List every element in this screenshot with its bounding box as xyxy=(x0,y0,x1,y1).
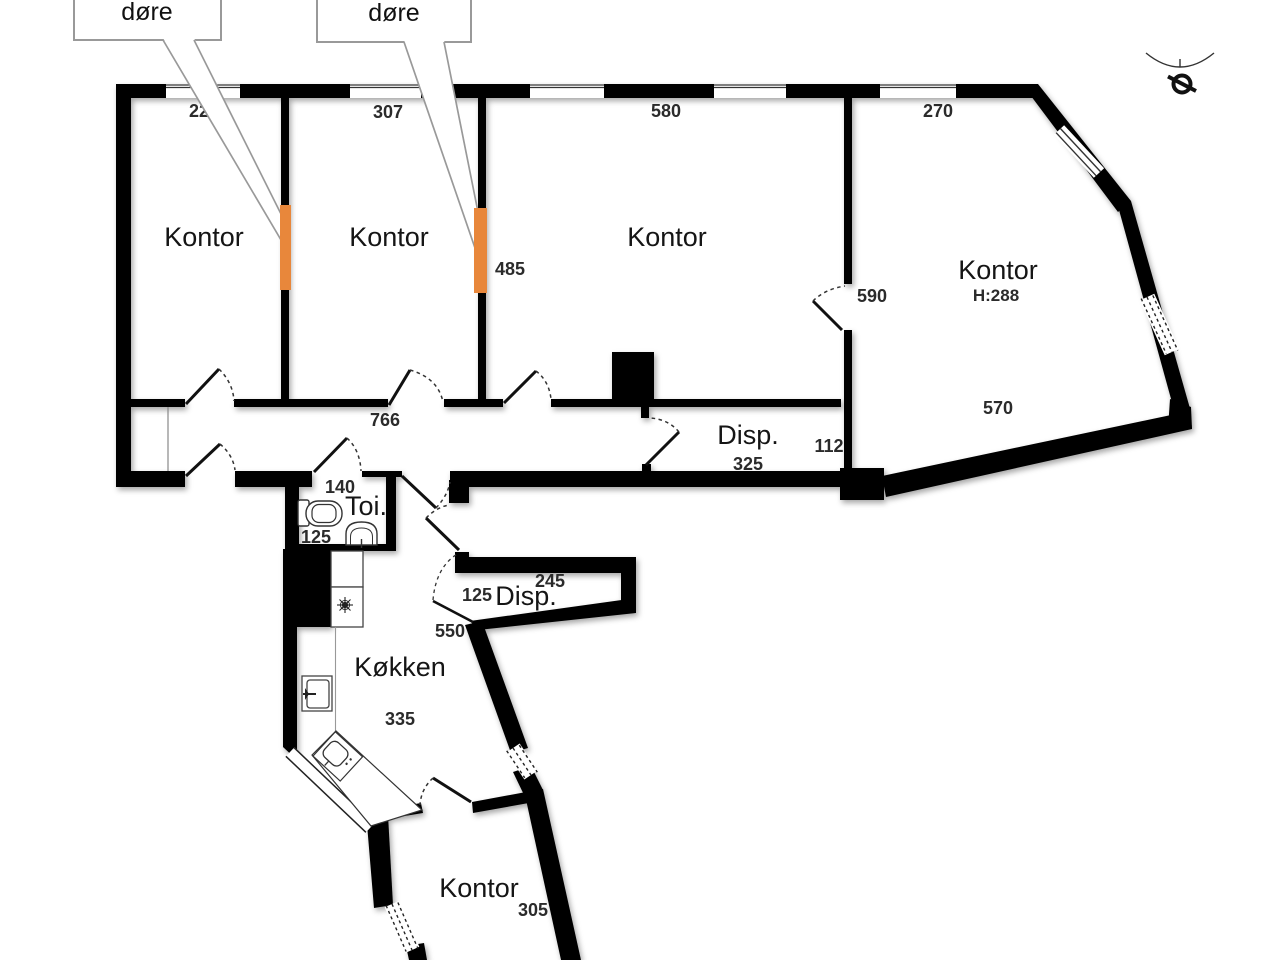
svg-text:H:288: H:288 xyxy=(973,286,1019,305)
svg-text:550: 550 xyxy=(435,621,465,641)
svg-text:døre: døre xyxy=(368,0,419,27)
svg-text:305: 305 xyxy=(518,900,548,920)
svg-text:125: 125 xyxy=(301,527,331,547)
svg-text:580: 580 xyxy=(651,101,681,121)
svg-text:Kontor: Kontor xyxy=(958,255,1038,285)
svg-text:485: 485 xyxy=(495,259,525,279)
svg-text:Køkken: Køkken xyxy=(354,652,446,682)
svg-text:Disp.: Disp. xyxy=(495,581,557,611)
svg-text:Kontor: Kontor xyxy=(164,222,244,252)
svg-text:325: 325 xyxy=(733,454,763,474)
svg-text:døre: døre xyxy=(121,0,172,26)
svg-text:Kontor: Kontor xyxy=(349,222,429,252)
svg-text:766: 766 xyxy=(370,410,400,430)
svg-text:Kontor: Kontor xyxy=(439,873,519,903)
svg-text:270: 270 xyxy=(923,101,953,121)
svg-text:Kontor: Kontor xyxy=(627,222,707,252)
svg-text:125: 125 xyxy=(462,585,492,605)
svg-text:Disp.: Disp. xyxy=(717,420,779,450)
svg-text:335: 335 xyxy=(385,709,415,729)
svg-text:Toi.: Toi. xyxy=(345,491,387,521)
svg-text:112: 112 xyxy=(814,436,843,456)
svg-text:570: 570 xyxy=(983,398,1013,418)
svg-text:307: 307 xyxy=(373,102,403,122)
svg-text:590: 590 xyxy=(857,286,887,306)
